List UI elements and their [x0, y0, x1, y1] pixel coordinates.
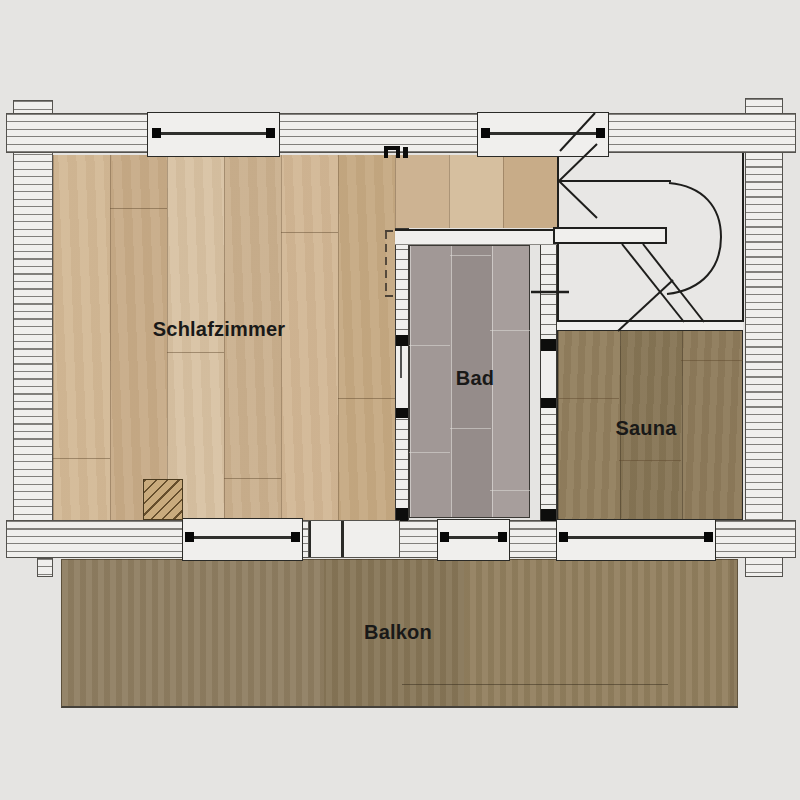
room-label-balkon: Balkon: [364, 621, 432, 644]
room-label-schlafzimmer: Schlafzimmer: [153, 318, 285, 341]
floor-plan: Schlafzimmer Bad Sauna Balkon: [0, 0, 800, 800]
stair-break-line: [618, 280, 673, 331]
room-label-bad: Bad: [456, 367, 494, 390]
overhead-dashed-line: [385, 231, 397, 296]
stair-symbol-overlay: [0, 0, 800, 800]
stair-arrow: [559, 144, 671, 218]
stair-walkline-curve: [667, 183, 721, 294]
room-label-sauna: Sauna: [615, 417, 676, 440]
stair-break-line: [560, 113, 595, 151]
